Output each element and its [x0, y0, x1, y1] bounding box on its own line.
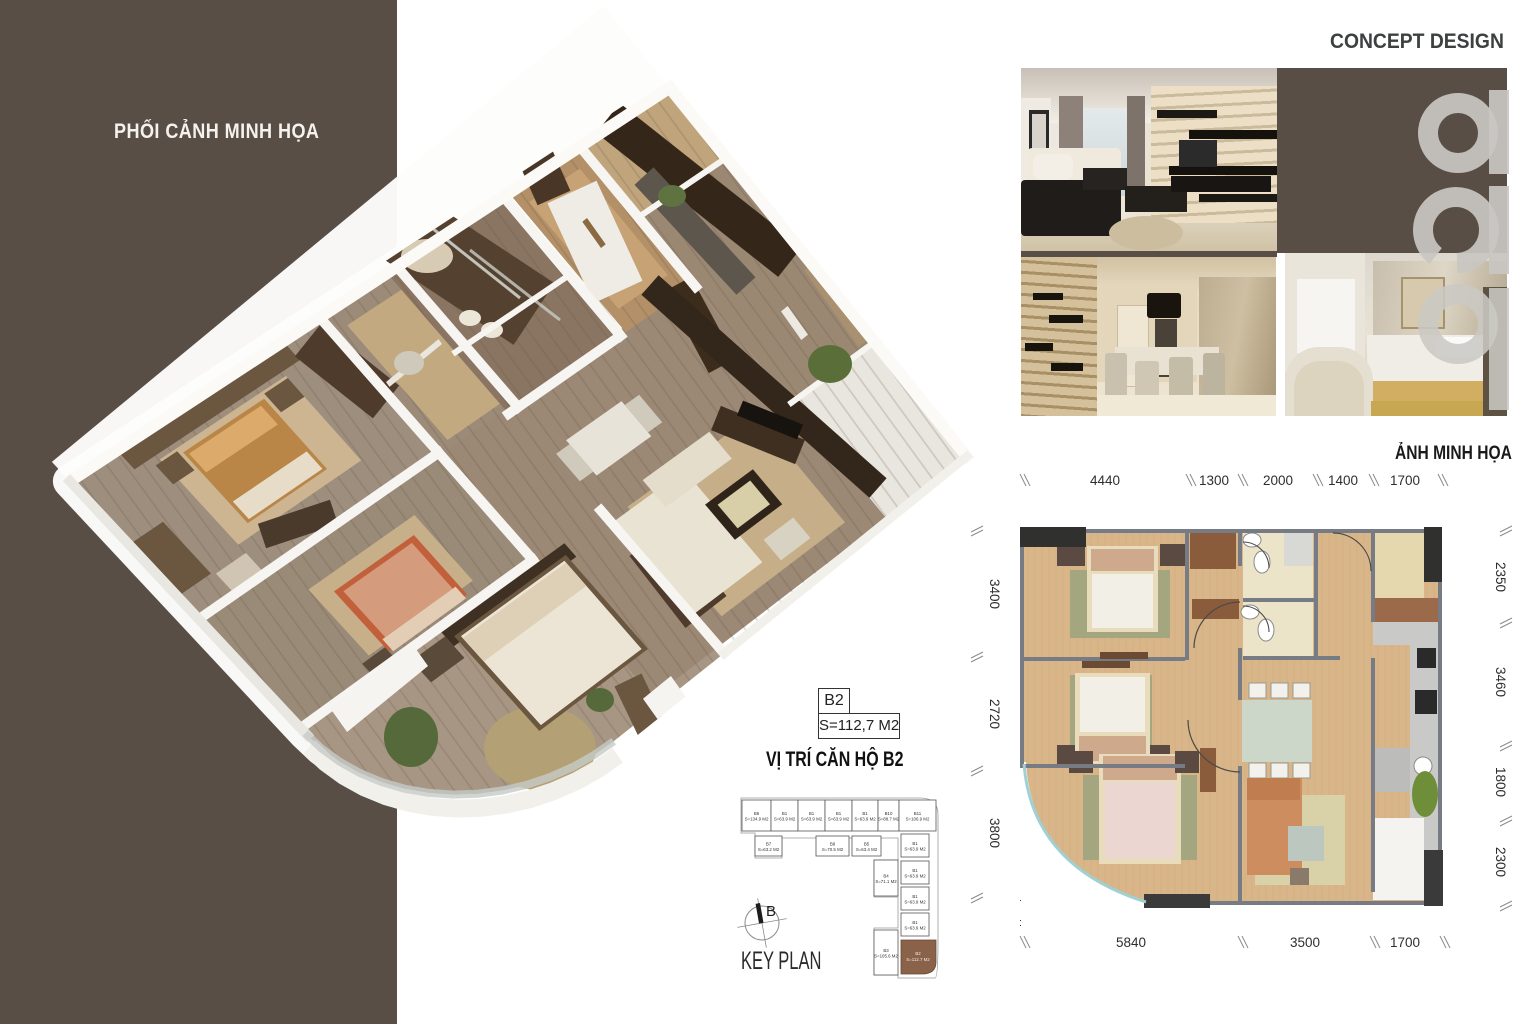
- svg-text:3460: 3460: [1493, 667, 1508, 697]
- svg-text:1300: 1300: [1199, 473, 1229, 488]
- svg-text:B1: B1: [836, 811, 842, 816]
- svg-text:S=63.9 M2: S=63.9 M2: [774, 817, 796, 822]
- svg-text:S=71.1 M2: S=71.1 M2: [875, 879, 897, 884]
- svg-text:B8: B8: [830, 842, 836, 847]
- svg-text:1700: 1700: [1390, 935, 1420, 950]
- svg-text:3800: 3800: [987, 818, 1002, 848]
- svg-text:3500: 3500: [1290, 935, 1320, 950]
- svg-text:B11: B11: [914, 811, 922, 816]
- svg-text:B: B: [766, 903, 776, 920]
- svg-text:B2: B2: [915, 951, 921, 956]
- svg-text:2000: 2000: [1263, 473, 1293, 488]
- svg-text:B6: B6: [754, 811, 760, 816]
- svg-text:B1: B1: [912, 894, 918, 899]
- svg-text:S=63.9 M2: S=63.9 M2: [904, 900, 926, 905]
- svg-text:S=112.7 M2: S=112.7 M2: [906, 957, 930, 962]
- svg-text:B3: B3: [883, 948, 889, 953]
- svg-text:S=63.9 M2: S=63.9 M2: [828, 817, 850, 822]
- svg-text:S=63.9 M2: S=63.9 M2: [904, 926, 926, 931]
- svg-text:S=105.6 M2: S=105.6 M2: [874, 954, 898, 959]
- svg-text:B1: B1: [862, 811, 868, 816]
- svg-text:3400: 3400: [987, 579, 1002, 609]
- svg-text:B1: B1: [912, 868, 918, 873]
- svg-text:S=63.9 M2: S=63.9 M2: [801, 817, 823, 822]
- svg-text:2300: 2300: [1493, 847, 1508, 877]
- svg-text:S=134.9 M2: S=134.9 M2: [745, 817, 769, 822]
- svg-text:4440: 4440: [1090, 473, 1120, 488]
- svg-text:1400: 1400: [1328, 473, 1358, 488]
- svg-text:B4: B4: [883, 874, 889, 879]
- svg-text:S=70.5 M2: S=70.5 M2: [822, 847, 844, 852]
- svg-text:B1: B1: [912, 841, 918, 846]
- svg-text:S=63.9 M2: S=63.9 M2: [904, 847, 926, 852]
- svg-text:B10: B10: [885, 811, 893, 816]
- svg-text:B1: B1: [809, 811, 815, 816]
- svg-text:S=63.4 M2: S=63.4 M2: [856, 847, 878, 852]
- svg-text:S=63.9 M2: S=63.9 M2: [854, 817, 876, 822]
- svg-text:2720: 2720: [987, 699, 1002, 729]
- svg-text:B1: B1: [912, 920, 918, 925]
- svg-text:1800: 1800: [1493, 767, 1508, 797]
- svg-text:1700: 1700: [1390, 473, 1420, 488]
- svg-text:5840: 5840: [1116, 935, 1146, 950]
- svg-text:S=106.9 M2: S=106.9 M2: [906, 817, 930, 822]
- svg-text:S=63.2 M2: S=63.2 M2: [758, 847, 780, 852]
- svg-text:B5: B5: [864, 842, 870, 847]
- svg-text:B7: B7: [766, 842, 772, 847]
- svg-text:2350: 2350: [1493, 562, 1508, 592]
- svg-text:S=88.7 M2: S=88.7 M2: [878, 817, 900, 822]
- svg-text:S=63.9 M2: S=63.9 M2: [904, 874, 926, 879]
- svg-text:B1: B1: [782, 811, 788, 816]
